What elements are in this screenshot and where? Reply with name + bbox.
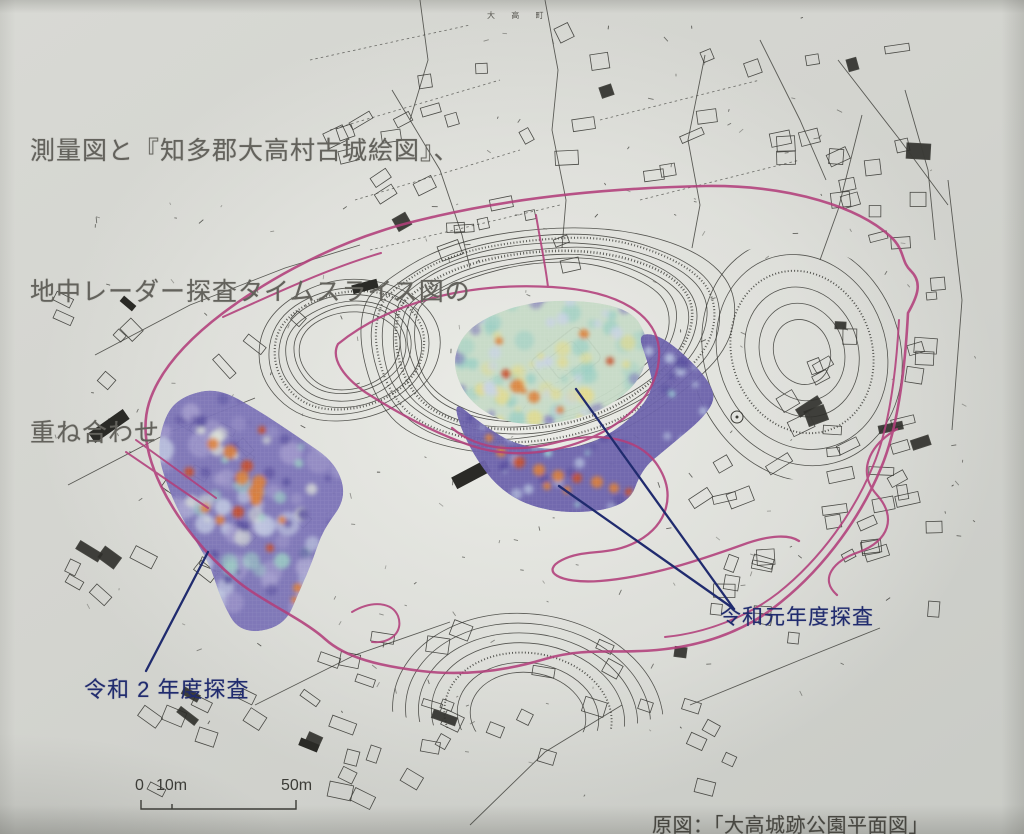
source-caption-line-1: 原図：「大高城跡公園平面図」 [652, 810, 929, 834]
scanned-survey-figure: 測量図と『知多郡大高村古城絵図』、 地中レーダー探査タイムスライス図の 重ね合わ… [0, 0, 1024, 834]
scale-label-50m: 50m [281, 777, 312, 795]
figure-title: 測量図と『知多郡大高村古城絵図』、 地中レーダー探査タイムスライス図の 重ね合わ… [30, 34, 471, 551]
source-caption: 原図：「大高城跡公園平面図」 （昭和 60 年名古屋市作成） [652, 744, 929, 834]
scale-bar-line [141, 800, 296, 809]
annotation-reiwa1-label: 令和元年度探査 [720, 601, 874, 631]
scale-label-0: 0 [135, 777, 144, 795]
town-label: 大 高 町 [487, 10, 550, 21]
figure-title-line-2: 地中レーダー探査タイムスライス図の [30, 269, 471, 316]
figure-title-line-3: 重ね合わせ [30, 410, 471, 457]
scale-label-10m: 10m [156, 777, 187, 795]
scale-bar [141, 800, 296, 809]
figure-title-line-1: 測量図と『知多郡大高村古城絵図』、 [30, 128, 471, 175]
annotation-reiwa2-label: 令和 2 年度探査 [84, 672, 249, 704]
